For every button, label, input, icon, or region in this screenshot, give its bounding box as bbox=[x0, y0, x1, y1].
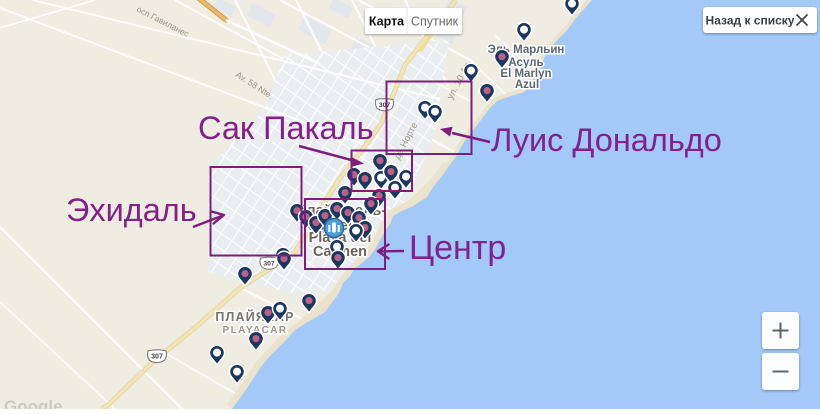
svg-text:Назад к списку: Назад к списку bbox=[706, 14, 795, 28]
svg-text:Эхидаль: Эхидаль bbox=[66, 192, 197, 228]
svg-text:Карта: Карта bbox=[369, 15, 405, 29]
svg-text:Луис Дональдо: Луис Дональдо bbox=[491, 122, 722, 158]
svg-text:Центр: Центр bbox=[409, 229, 506, 267]
svg-text:Сак Пакаль: Сак Пакаль bbox=[198, 110, 374, 146]
svg-text:Google: Google bbox=[4, 397, 63, 409]
svg-text:Azul: Azul bbox=[515, 79, 539, 91]
svg-text:Спутник: Спутник bbox=[411, 15, 459, 29]
